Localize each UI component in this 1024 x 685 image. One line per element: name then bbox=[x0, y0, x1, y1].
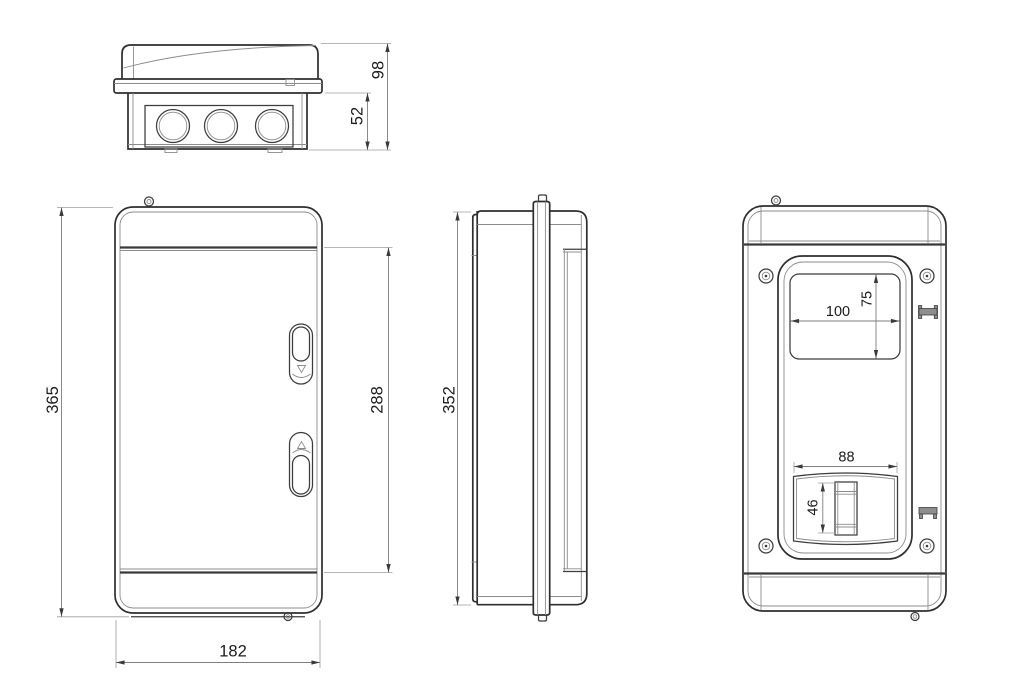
dim-label-98: 98 bbox=[370, 61, 388, 79]
drawing-background bbox=[0, 0, 1024, 685]
dim-label-75: 75 bbox=[860, 291, 876, 307]
technical-drawing-canvas: 98 52 bbox=[0, 0, 1024, 685]
dim-label-352: 352 bbox=[441, 386, 459, 414]
dim-label-46: 46 bbox=[806, 499, 822, 515]
dim-label-88: 88 bbox=[838, 450, 854, 466]
dim-label-100: 100 bbox=[826, 304, 850, 320]
dim-label-182: 182 bbox=[219, 643, 247, 661]
dim-label-288: 288 bbox=[369, 386, 387, 414]
dim-label-52: 52 bbox=[349, 107, 367, 125]
drawing-sheet: 98 52 bbox=[0, 0, 1024, 685]
dim-label-365: 365 bbox=[44, 386, 62, 414]
